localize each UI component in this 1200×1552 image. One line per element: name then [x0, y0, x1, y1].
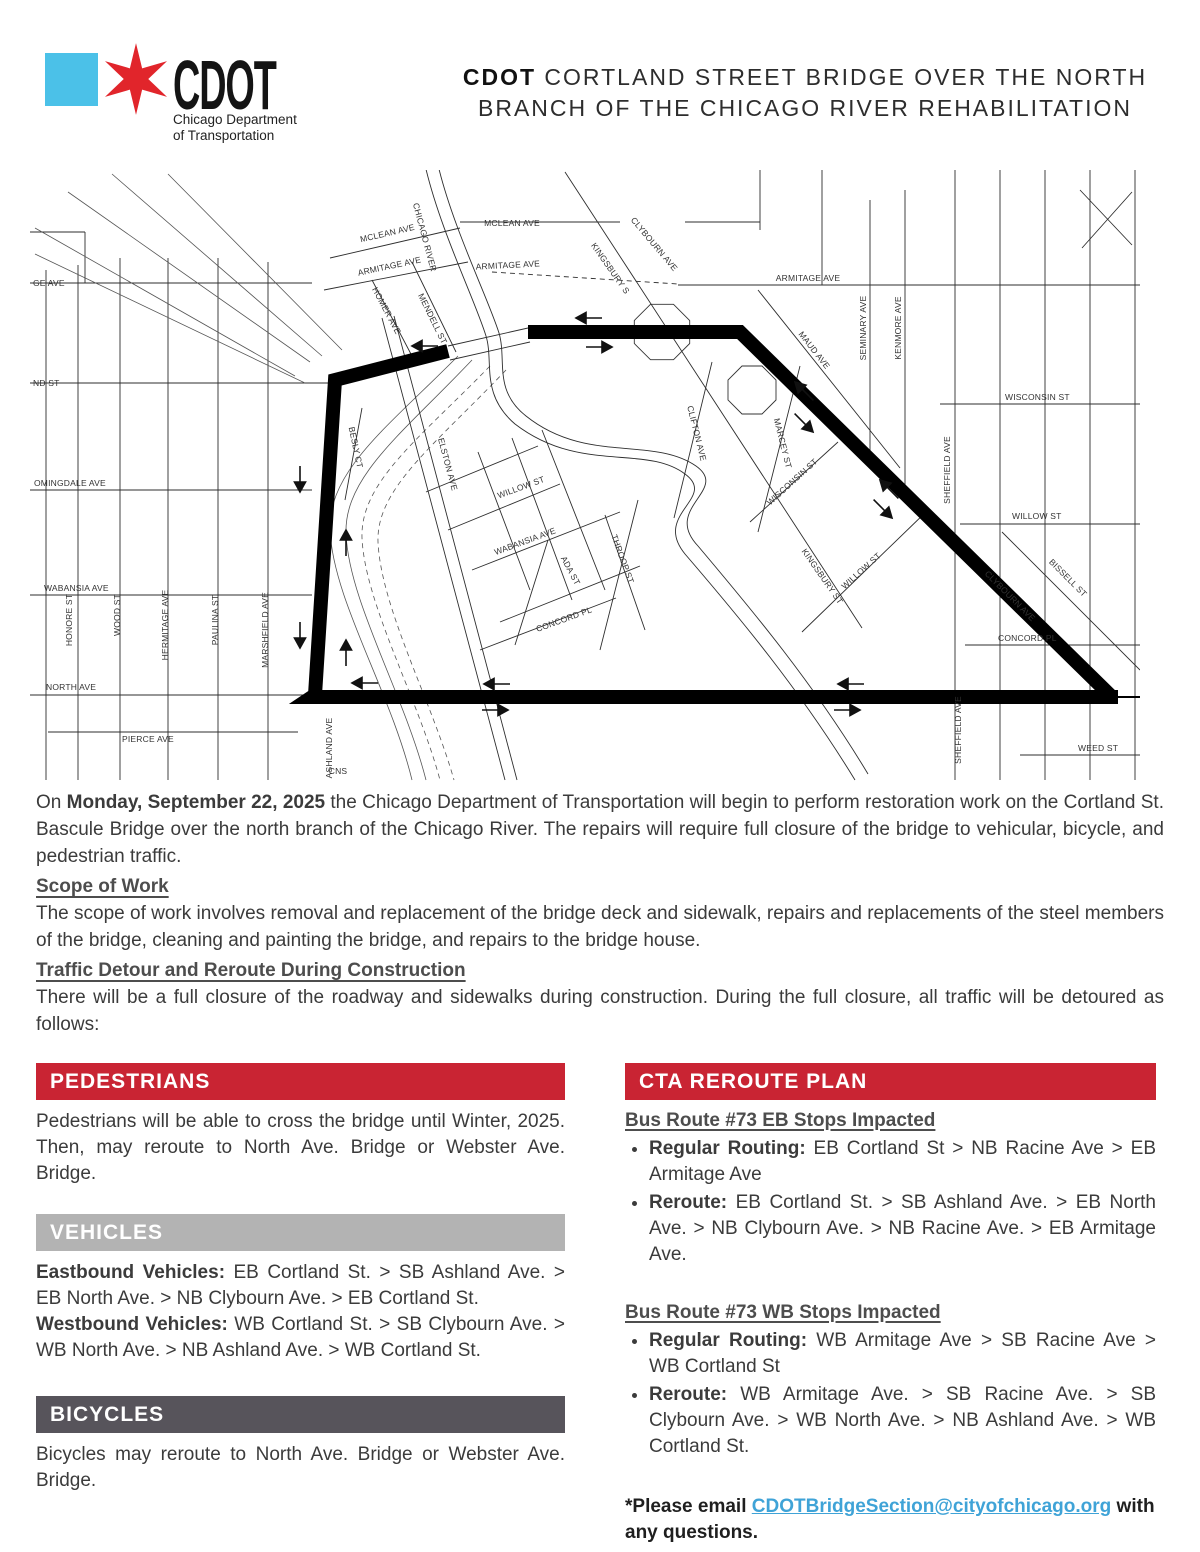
chicago-star-icon [103, 40, 169, 118]
svg-text:SHEFFIELD AVE: SHEFFIELD AVE [942, 436, 952, 504]
svg-text:WEED ST: WEED ST [1078, 743, 1118, 753]
cta-bar: CTA REROUTE PLAN [625, 1063, 1156, 1100]
pedestrians-bar: PEDESTRIANS [36, 1063, 565, 1100]
logo-dept-line1: Chicago Department [173, 112, 297, 128]
svg-text:KENMORE AVE: KENMORE AVE [893, 296, 903, 360]
traffic-section: Traffic Detour and Reroute During Constr… [36, 960, 1164, 1038]
traffic-heading: Traffic Detour and Reroute During Constr… [36, 960, 1164, 982]
contact-email-link[interactable]: CDOTBridgeSection@cityofchicago.org [752, 1496, 1112, 1517]
bicycles-heading: BICYCLES [50, 1403, 164, 1426]
svg-text:SEMINARY AVE: SEMINARY AVE [858, 295, 868, 360]
reroute-label: Reroute: [649, 1384, 727, 1405]
logo-dept-line2: of Transportation [173, 128, 297, 144]
svg-text:CONCORD PL: CONCORD PL [535, 604, 594, 633]
page-title-bold: CDOT [463, 64, 536, 90]
regular-routing-label: Regular Routing: [649, 1330, 807, 1351]
svg-text:HERMITAGE AVE: HERMITAGE AVE [160, 589, 170, 660]
traffic-body: There will be a full closure of the road… [36, 984, 1164, 1038]
intro-paragraph: On Monday, September 22, 2025 the Chicag… [36, 789, 1164, 870]
detour-map: GE AVEND STOMINGDALE AVEWABANSIA AVENORT… [30, 170, 1140, 782]
intro-pre: On [36, 792, 67, 813]
svg-text:KINGSBURY S: KINGSBURY S [589, 241, 632, 296]
vehicles-heading: VEHICLES [50, 1221, 163, 1244]
svg-text:CONCORD PL: CONCORD PL [998, 633, 1057, 643]
svg-text:ARMITAGE AVE: ARMITAGE AVE [475, 258, 540, 271]
reroute-label: Reroute: [649, 1192, 727, 1213]
scope-body: The scope of work involves removal and r… [36, 900, 1164, 954]
page-title: CDOT CORTLAND STREET BRIDGE OVER THE NOR… [455, 62, 1155, 124]
svg-text:BESLY CT: BESLY CT [347, 426, 365, 469]
svg-text:OMINGDALE AVE: OMINGDALE AVE [34, 478, 106, 488]
svg-text:WISCONSIN ST: WISCONSIN ST [1005, 392, 1070, 402]
list-item: Regular Routing: EB Cortland St > NB Rac… [649, 1136, 1156, 1188]
list-item: Reroute: EB Cortland St. > SB Ashland Av… [649, 1190, 1156, 1268]
svg-text:ND ST: ND ST [33, 378, 60, 388]
logo-acronym: CDOT [173, 50, 276, 120]
svg-text:MENDELL ST: MENDELL ST [416, 292, 449, 346]
logo-blue-square [45, 53, 98, 106]
svg-text:GE AVE: GE AVE [33, 278, 65, 288]
vehicles-eastbound: Eastbound Vehicles: EB Cortland St. > SB… [36, 1260, 565, 1312]
svg-text:WOOD ST: WOOD ST [112, 594, 122, 636]
svg-text:WILLOW ST: WILLOW ST [839, 550, 882, 591]
westbound-label: Westbound Vehicles: [36, 1314, 228, 1335]
note-pre: *Please email [625, 1496, 752, 1517]
scope-section: Scope of Work The scope of work involves… [36, 876, 1164, 954]
list-item: Regular Routing: WB Armitage Ave > SB Ra… [649, 1328, 1156, 1380]
svg-text:WABANSIA AVE: WABANSIA AVE [44, 583, 109, 593]
cta-heading: CTA REROUTE PLAN [639, 1070, 867, 1093]
svg-text:MARCEY ST: MARCEY ST [772, 417, 794, 469]
regular-routing-label: Regular Routing: [649, 1138, 806, 1159]
svg-text:PIERCE AVE: PIERCE AVE [122, 734, 174, 744]
svg-text:ELSTON AVE: ELSTON AVE [436, 437, 460, 492]
wb-stops-list: Regular Routing: WB Armitage Ave > SB Ra… [625, 1328, 1156, 1460]
svg-text:BISSELL ST: BISSELL ST [1047, 557, 1089, 599]
svg-text:HOMER AVE: HOMER AVE [370, 285, 403, 335]
svg-text:MCLEAN AVE: MCLEAN AVE [359, 222, 416, 244]
svg-text:ARMITAGE AVE: ARMITAGE AVE [357, 254, 422, 277]
contact-note: *Please email CDOTBridgeSection@cityofch… [625, 1494, 1156, 1546]
list-item: Reroute: WB Armitage Ave. > SB Racine Av… [649, 1382, 1156, 1460]
svg-text:MAUD AVE: MAUD AVE [797, 329, 833, 371]
svg-text:CLIFTON AVE: CLIFTON AVE [685, 405, 708, 463]
start-date: Monday, September 22, 2025 [67, 792, 325, 813]
svg-text:NORTH AVE: NORTH AVE [46, 682, 96, 692]
bicycles-bar: BICYCLES [36, 1396, 565, 1433]
page-title-rest: CORTLAND STREET BRIDGE OVER THE NORTH BR… [478, 64, 1147, 121]
svg-text:CLYBOURN AVE: CLYBOURN AVE [983, 569, 1038, 624]
pedestrians-heading: PEDESTRIANS [50, 1070, 210, 1093]
logo-department-name: Chicago Department of Transportation [173, 112, 297, 144]
pedestrians-body: Pedestrians will be able to cross the br… [36, 1109, 565, 1187]
svg-text:ARMITAGE AVE: ARMITAGE AVE [776, 273, 841, 283]
svg-text:WILLOW ST: WILLOW ST [496, 474, 546, 500]
svg-text:MARSHFIELD AVE: MARSHFIELD AVE [260, 592, 270, 668]
eb-stops-list: Regular Routing: EB Cortland St > NB Rac… [625, 1136, 1156, 1268]
svg-text:MCLEAN AVE: MCLEAN AVE [484, 218, 540, 228]
svg-text:SHEFFIELD AVE: SHEFFIELD AVE [953, 696, 963, 764]
svg-text:WILLOW ST: WILLOW ST [1012, 511, 1062, 521]
svg-text:KINGSBURY ST: KINGSBURY ST [800, 547, 846, 606]
vehicles-westbound: Westbound Vehicles: WB Cortland St. > SB… [36, 1312, 565, 1364]
bicycles-body: Bicycles may reroute to North Ave. Bridg… [36, 1442, 565, 1494]
scope-heading: Scope of Work [36, 876, 1164, 898]
left-column: PEDESTRIANS Pedestrians will be able to … [36, 1063, 565, 1494]
svg-text:CLYBOURN AVE: CLYBOURN AVE [629, 215, 680, 273]
svg-text:ADA ST: ADA ST [559, 554, 583, 586]
eb-stops-heading: Bus Route #73 EB Stops Impacted [625, 1110, 1156, 1132]
svg-text:HONORE ST: HONORE ST [64, 594, 74, 646]
svg-text:PAULINA ST: PAULINA ST [210, 595, 220, 646]
vehicles-bar: VEHICLES [36, 1214, 565, 1251]
svg-text:CNS: CNS [329, 766, 348, 776]
right-column: CTA REROUTE PLAN Bus Route #73 EB Stops … [625, 1063, 1156, 1546]
wb-stops-heading: Bus Route #73 WB Stops Impacted [625, 1302, 1156, 1324]
eastbound-label: Eastbound Vehicles: [36, 1262, 225, 1283]
